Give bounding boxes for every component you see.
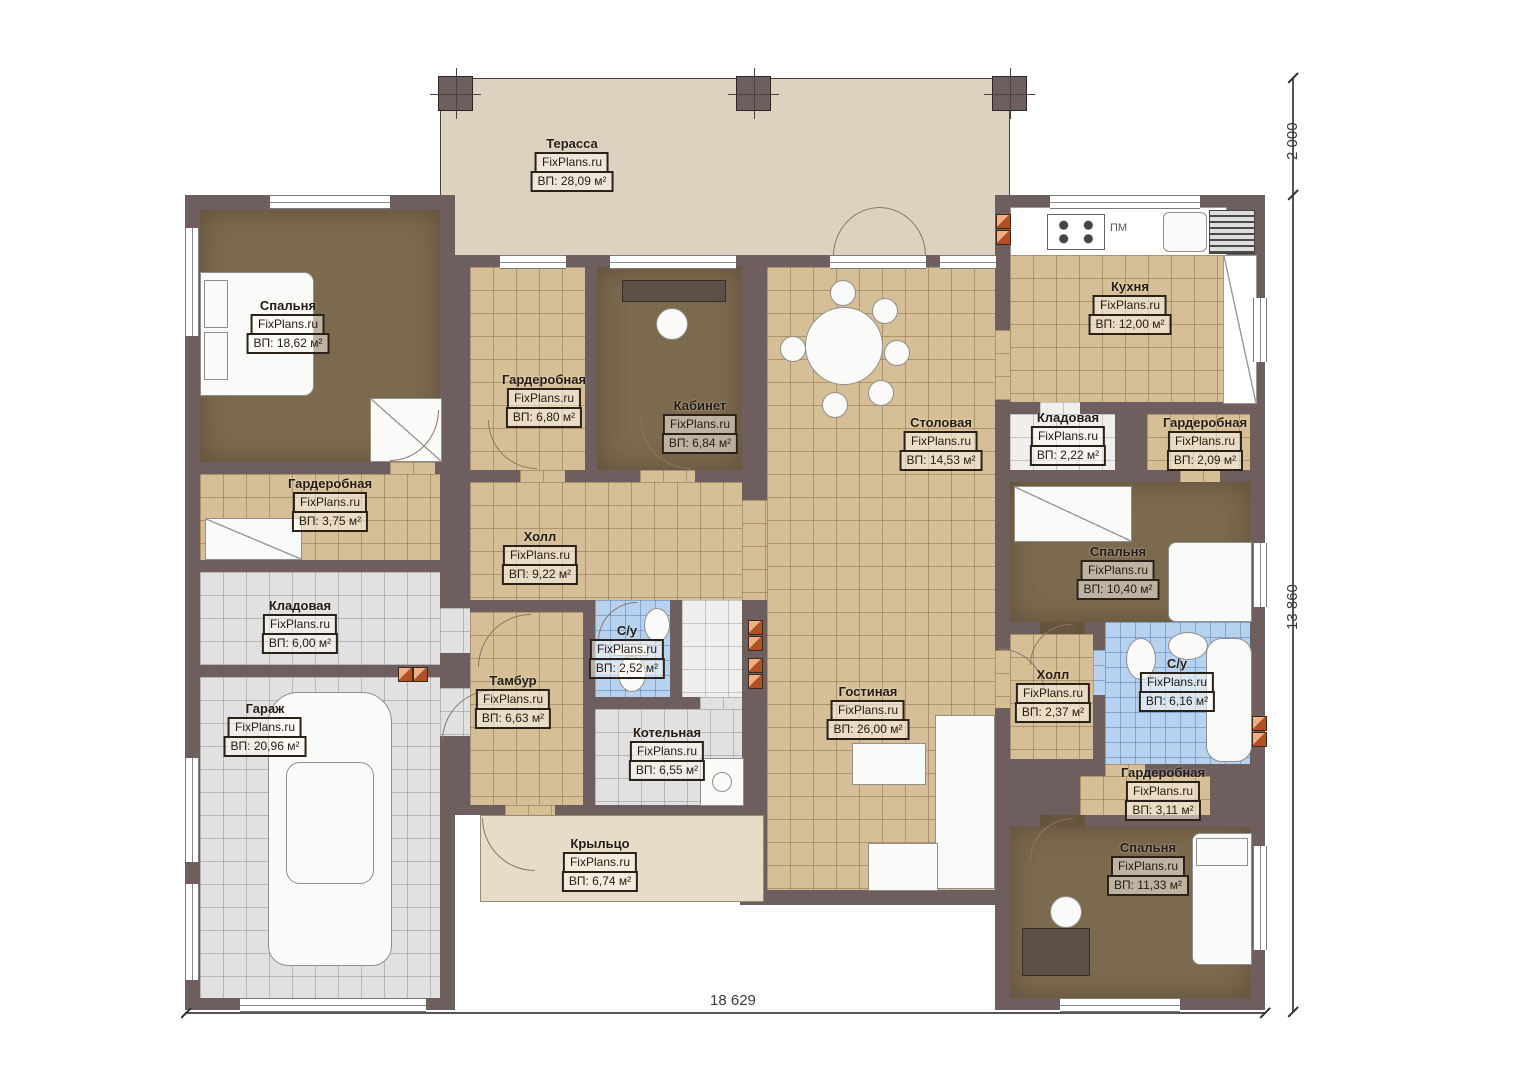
room-label-living: Гостиная FixPlans.ru ВП: 26,00 м² xyxy=(827,684,910,740)
room-name: Кладовая xyxy=(1030,410,1106,425)
door-opening xyxy=(1093,650,1105,695)
room-label-garage: Гараж FixPlans.ru ВП: 20,96 м² xyxy=(224,701,307,757)
desk xyxy=(1022,928,1090,976)
room-area: ВП: 11,33 м² xyxy=(1107,875,1189,896)
room-name: Столовая xyxy=(900,415,983,430)
room-area: ВП: 12,00 м² xyxy=(1089,314,1172,335)
floor-corridor-niche xyxy=(682,600,742,697)
room-area: ВП: 3,11 м² xyxy=(1125,800,1200,821)
watermark: FixPlans.ru xyxy=(904,431,978,452)
room-label-office: Кабинет FixPlans.ru ВП: 6,84 м² xyxy=(662,398,738,454)
room-label-bedroom-1040: Спальня FixPlans.ru ВП: 10,40 м² xyxy=(1077,544,1160,600)
vent-block xyxy=(748,674,763,689)
vent-block xyxy=(398,667,413,682)
room-label-hall-237: Холл FixPlans.ru ВП: 2,37 м² xyxy=(1015,667,1091,723)
watermark: FixPlans.ru xyxy=(503,545,577,566)
room-area: ВП: 2,37 м² xyxy=(1015,702,1091,723)
chair xyxy=(868,380,894,406)
window xyxy=(940,255,996,269)
watermark: FixPlans.ru xyxy=(590,639,664,660)
boiler-dial xyxy=(712,772,732,792)
room-name: Гостиная xyxy=(827,684,910,699)
vent-block xyxy=(1252,716,1267,731)
watermark: FixPlans.ru xyxy=(1016,683,1090,704)
stove-icon xyxy=(1047,214,1105,250)
room-label-bedroom-tl: Спальня FixPlans.ru ВП: 18,62 м² xyxy=(247,298,330,354)
room-name: Спальня xyxy=(1107,840,1189,855)
room-area: ВП: 18,62 м² xyxy=(247,333,330,354)
watermark: FixPlans.ru xyxy=(1093,295,1167,316)
chair xyxy=(822,392,848,418)
dimension-width: 18 629 xyxy=(710,992,756,1009)
door-opening xyxy=(640,470,695,482)
watermark: FixPlans.ru xyxy=(251,314,325,335)
kitchen-cabinet-column xyxy=(1223,255,1257,404)
terrace-column xyxy=(438,76,473,111)
window xyxy=(1253,846,1267,950)
room-name: Гардеробная xyxy=(288,476,372,491)
door-opening xyxy=(995,330,1010,400)
terrace-column xyxy=(736,76,771,111)
room-name: С/у xyxy=(1139,656,1215,671)
window xyxy=(185,228,199,336)
window xyxy=(185,884,199,980)
room-area: ВП: 6,55 м² xyxy=(629,760,705,781)
room-area: ВП: 6,63 м² xyxy=(475,708,551,729)
dishwasher-label: ПМ xyxy=(1110,222,1127,234)
window xyxy=(185,758,199,862)
room-area: ВП: 3,75 м² xyxy=(292,511,368,532)
dimension-line-bottom xyxy=(185,1012,1265,1014)
room-name: Гараж xyxy=(224,701,307,716)
room-name: Котельная xyxy=(629,725,705,740)
wardrobe-unit xyxy=(1014,486,1132,542)
room-name: Спальня xyxy=(247,298,330,313)
room-name: Спальня xyxy=(1077,544,1160,559)
watermark: FixPlans.ru xyxy=(663,414,737,435)
watermark: FixPlans.ru xyxy=(476,689,550,710)
room-label-boiler: Котельная FixPlans.ru ВП: 6,55 м² xyxy=(629,725,705,781)
window xyxy=(1060,998,1180,1012)
window xyxy=(500,255,566,269)
pillow xyxy=(204,280,228,328)
opening-corridor-boiler xyxy=(700,697,742,709)
room-area: ВП: 6,84 м² xyxy=(662,433,738,454)
room-label-wardrobe-209: Гардеробная FixPlans.ru ВП: 2,09 м² xyxy=(1163,415,1247,471)
car-roof xyxy=(286,762,374,884)
dimension-height: 13 860 xyxy=(1284,584,1301,630)
watermark: FixPlans.ru xyxy=(293,492,367,513)
room-label-wardrobe-375: Гардеробная FixPlans.ru ВП: 3,75 м² xyxy=(288,476,372,532)
room-name: Кухня xyxy=(1089,279,1172,294)
room-area: ВП: 9,22 м² xyxy=(502,564,578,585)
terrace-door-threshold xyxy=(830,255,926,269)
room-label-wardrobe-680: Гардеробная FixPlans.ru ВП: 6,80 м² xyxy=(502,372,586,428)
watermark: FixPlans.ru xyxy=(831,700,905,721)
chair xyxy=(884,340,910,366)
chair xyxy=(1050,896,1082,928)
vent-block xyxy=(996,230,1011,245)
floor-plan: ПМ Терасса FixPlans.ru ВП: 28,09 м² xyxy=(0,0,1528,1080)
desk xyxy=(622,280,726,302)
room-area: ВП: 28,09 м² xyxy=(531,171,614,192)
door-opening xyxy=(505,805,555,815)
room-area: ВП: 2,22 м² xyxy=(1030,445,1106,466)
watermark: FixPlans.ru xyxy=(1111,856,1185,877)
door-opening xyxy=(390,462,435,474)
room-name: Гардеробная xyxy=(1121,765,1205,780)
room-name: Гардеробная xyxy=(1163,415,1247,430)
chair xyxy=(780,336,806,362)
chair xyxy=(830,280,856,306)
dining-table xyxy=(805,307,883,385)
door-opening xyxy=(1180,470,1220,482)
room-label-porch: Крыльцо FixPlans.ru ВП: 6,74 м² xyxy=(562,836,638,892)
watermark: FixPlans.ru xyxy=(563,852,637,873)
sofa-seat xyxy=(868,843,938,891)
watermark: FixPlans.ru xyxy=(1081,560,1155,581)
vent-block xyxy=(1252,732,1267,747)
room-label-terrace: Терасса FixPlans.ru ВП: 28,09 м² xyxy=(531,136,614,192)
vent-block xyxy=(748,636,763,651)
room-name: Терасса xyxy=(531,136,614,151)
room-name: Холл xyxy=(1015,667,1091,682)
kitchen-sink xyxy=(1163,212,1207,252)
room-label-vestibule: Тамбур FixPlans.ru ВП: 6,63 м² xyxy=(475,673,551,729)
dimension-terrace-depth: 2 000 xyxy=(1284,122,1301,160)
watermark: FixPlans.ru xyxy=(507,388,581,409)
room-name: Холл xyxy=(502,529,578,544)
pillow xyxy=(204,332,228,380)
chair xyxy=(872,298,898,324)
garage-gate xyxy=(240,998,426,1012)
vent-block xyxy=(748,658,763,673)
watermark: FixPlans.ru xyxy=(228,717,302,738)
room-label-kitchen: Кухня FixPlans.ru ВП: 12,00 м² xyxy=(1089,279,1172,335)
watermark: FixPlans.ru xyxy=(1168,431,1242,452)
bed xyxy=(1168,542,1252,622)
room-label-hall-922: Холл FixPlans.ru ВП: 9,22 м² xyxy=(502,529,578,585)
room-name: С/у xyxy=(589,623,665,638)
room-label-bedroom-1133: Спальня FixPlans.ru ВП: 11,33 м² xyxy=(1107,840,1189,896)
sofa xyxy=(935,715,995,889)
dimension-line-right xyxy=(1292,78,1294,1012)
room-label-wc-252: С/у FixPlans.ru ВП: 2,52 м² xyxy=(589,623,665,679)
room-name: Тамбур xyxy=(475,673,551,688)
vent-block xyxy=(748,620,763,635)
window xyxy=(610,255,736,269)
room-label-wardrobe-311: Гардеробная FixPlans.ru ВП: 3,11 м² xyxy=(1121,765,1205,821)
room-area: ВП: 2,52 м² xyxy=(589,658,665,679)
room-area: ВП: 6,00 м² xyxy=(262,633,338,654)
room-area: ВП: 26,00 м² xyxy=(827,719,910,740)
terrace-column xyxy=(992,76,1027,111)
chair xyxy=(656,308,688,340)
door-opening xyxy=(440,608,470,653)
vent-block xyxy=(996,214,1011,229)
room-label-pantry-222: Кладовая FixPlans.ru ВП: 2,22 м² xyxy=(1030,410,1106,466)
fridge-icon xyxy=(1209,210,1255,254)
room-floor-terrace xyxy=(440,78,1010,257)
room-name: Кладовая xyxy=(262,598,338,613)
room-area: ВП: 6,16 м² xyxy=(1139,691,1215,712)
room-label-wc-616: С/у FixPlans.ru ВП: 6,16 м² xyxy=(1139,656,1215,712)
opening-hall-dining xyxy=(742,500,767,600)
watermark: FixPlans.ru xyxy=(1140,672,1214,693)
window xyxy=(1253,543,1267,607)
room-area: ВП: 6,80 м² xyxy=(506,407,582,428)
room-name: Гардеробная xyxy=(502,372,586,387)
watermark: FixPlans.ru xyxy=(1126,781,1200,802)
vent-block xyxy=(413,667,428,682)
room-name: Крыльцо xyxy=(562,836,638,851)
room-area: ВП: 14,53 м² xyxy=(900,450,983,471)
room-label-dining: Столовая FixPlans.ru ВП: 14,53 м² xyxy=(900,415,983,471)
pillow xyxy=(1196,838,1248,866)
door-opening xyxy=(520,470,565,482)
tv-stand xyxy=(852,743,926,785)
room-area: ВП: 6,74 м² xyxy=(562,871,638,892)
window xyxy=(1050,195,1200,209)
window xyxy=(270,195,390,209)
watermark: FixPlans.ru xyxy=(630,741,704,762)
room-label-pantry-600: Кладовая FixPlans.ru ВП: 6,00 м² xyxy=(262,598,338,654)
room-name: Кабинет xyxy=(662,398,738,413)
room-area: ВП: 2,09 м² xyxy=(1167,450,1243,471)
room-area: ВП: 10,40 м² xyxy=(1077,579,1160,600)
watermark: FixPlans.ru xyxy=(263,614,337,635)
watermark: FixPlans.ru xyxy=(535,152,609,173)
room-area: ВП: 20,96 м² xyxy=(224,736,307,757)
window xyxy=(1253,298,1267,362)
watermark: FixPlans.ru xyxy=(1031,426,1105,447)
